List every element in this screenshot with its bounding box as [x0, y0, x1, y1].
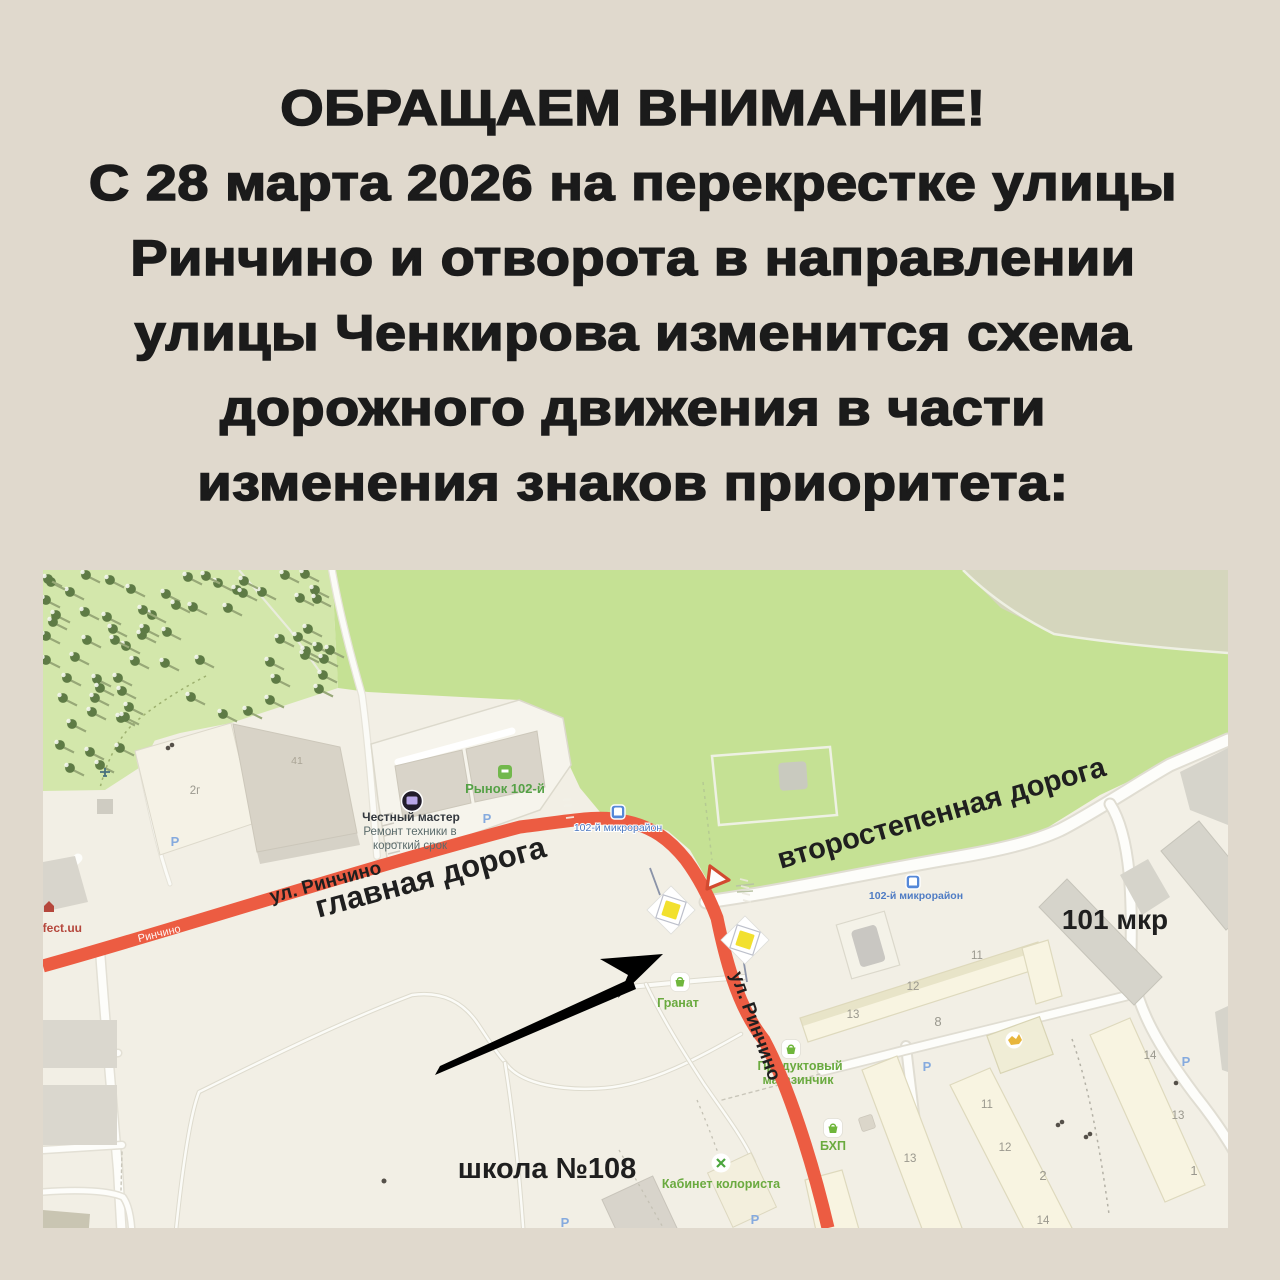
- svg-text:P: P: [923, 1059, 932, 1074]
- svg-text:P: P: [561, 1215, 570, 1228]
- svg-text:11: 11: [971, 950, 983, 962]
- svg-text:1: 1: [1190, 1163, 1197, 1178]
- svg-text:12: 12: [907, 981, 920, 993]
- svg-text:школа №108: школа №108: [458, 1153, 637, 1185]
- svg-text:101 мкр: 101 мкр: [1062, 904, 1168, 935]
- svg-text:БХП: БХП: [820, 1139, 846, 1153]
- svg-text:12: 12: [999, 1142, 1012, 1154]
- svg-text:102-й микрорайон: 102-й микрорайон: [574, 822, 663, 834]
- svg-text:P: P: [1182, 1054, 1191, 1069]
- svg-text:P: P: [483, 811, 492, 826]
- svg-text:2: 2: [1039, 1168, 1046, 1183]
- svg-text:Кабинет колориста: Кабинет колориста: [662, 1177, 781, 1191]
- svg-text:41: 41: [291, 755, 303, 767]
- svg-text:P: P: [751, 1212, 760, 1227]
- svg-text:Рынок 102-й: Рынок 102-й: [465, 781, 545, 796]
- svg-text:8: 8: [934, 1014, 941, 1029]
- svg-text:13: 13: [1172, 1110, 1185, 1122]
- svg-text:Гранат: Гранат: [657, 996, 699, 1010]
- svg-text:11: 11: [981, 1099, 993, 1111]
- svg-text:короткий срок: короткий срок: [373, 840, 448, 852]
- svg-text:Честный мастер: Честный мастер: [362, 810, 460, 824]
- svg-text:13: 13: [847, 1009, 860, 1021]
- svg-text:P: P: [171, 834, 180, 849]
- svg-text:14: 14: [1037, 1215, 1050, 1227]
- svg-text:13: 13: [904, 1153, 917, 1165]
- svg-text:rfect.uu: rfect.uu: [43, 921, 82, 935]
- svg-text:14: 14: [1144, 1050, 1157, 1062]
- svg-text:102-й микрорайон: 102-й микрорайон: [869, 890, 963, 902]
- svg-text:2г: 2г: [190, 785, 201, 797]
- svg-text:Ремонт техники в: Ремонт техники в: [363, 826, 456, 838]
